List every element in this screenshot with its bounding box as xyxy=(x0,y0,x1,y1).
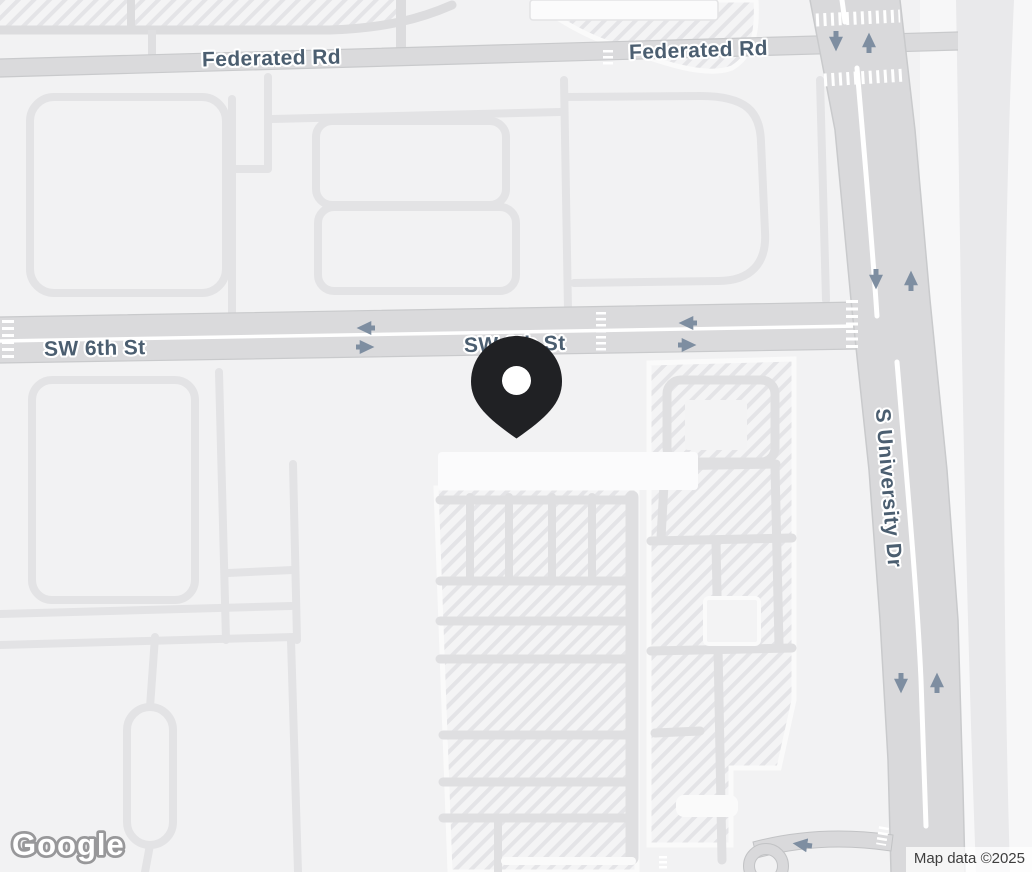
map-data-attribution: Map data ©2025 xyxy=(906,847,1032,872)
building-in-lot-1 xyxy=(685,400,747,450)
building-center xyxy=(438,452,698,490)
google-logo[interactable]: Google xyxy=(8,821,158,867)
road-label-federated-rd: Federated Rd xyxy=(202,46,341,73)
arrow-left-icon xyxy=(798,844,812,846)
location-pin[interactable] xyxy=(455,320,580,450)
map-canvas[interactable]: Federated Rd Federated Rd SW 6th St SW 6… xyxy=(0,0,1032,872)
building-top xyxy=(530,0,718,20)
building-in-lot-3 xyxy=(676,795,738,817)
road-label-sw-6th-st: SW 6th St xyxy=(44,336,146,362)
google-logo-text[interactable]: Google xyxy=(12,827,125,862)
building-in-lot-2 xyxy=(705,598,759,644)
road-label-federated-rd: Federated Rd xyxy=(629,37,769,65)
location-pin-hole xyxy=(502,366,531,395)
